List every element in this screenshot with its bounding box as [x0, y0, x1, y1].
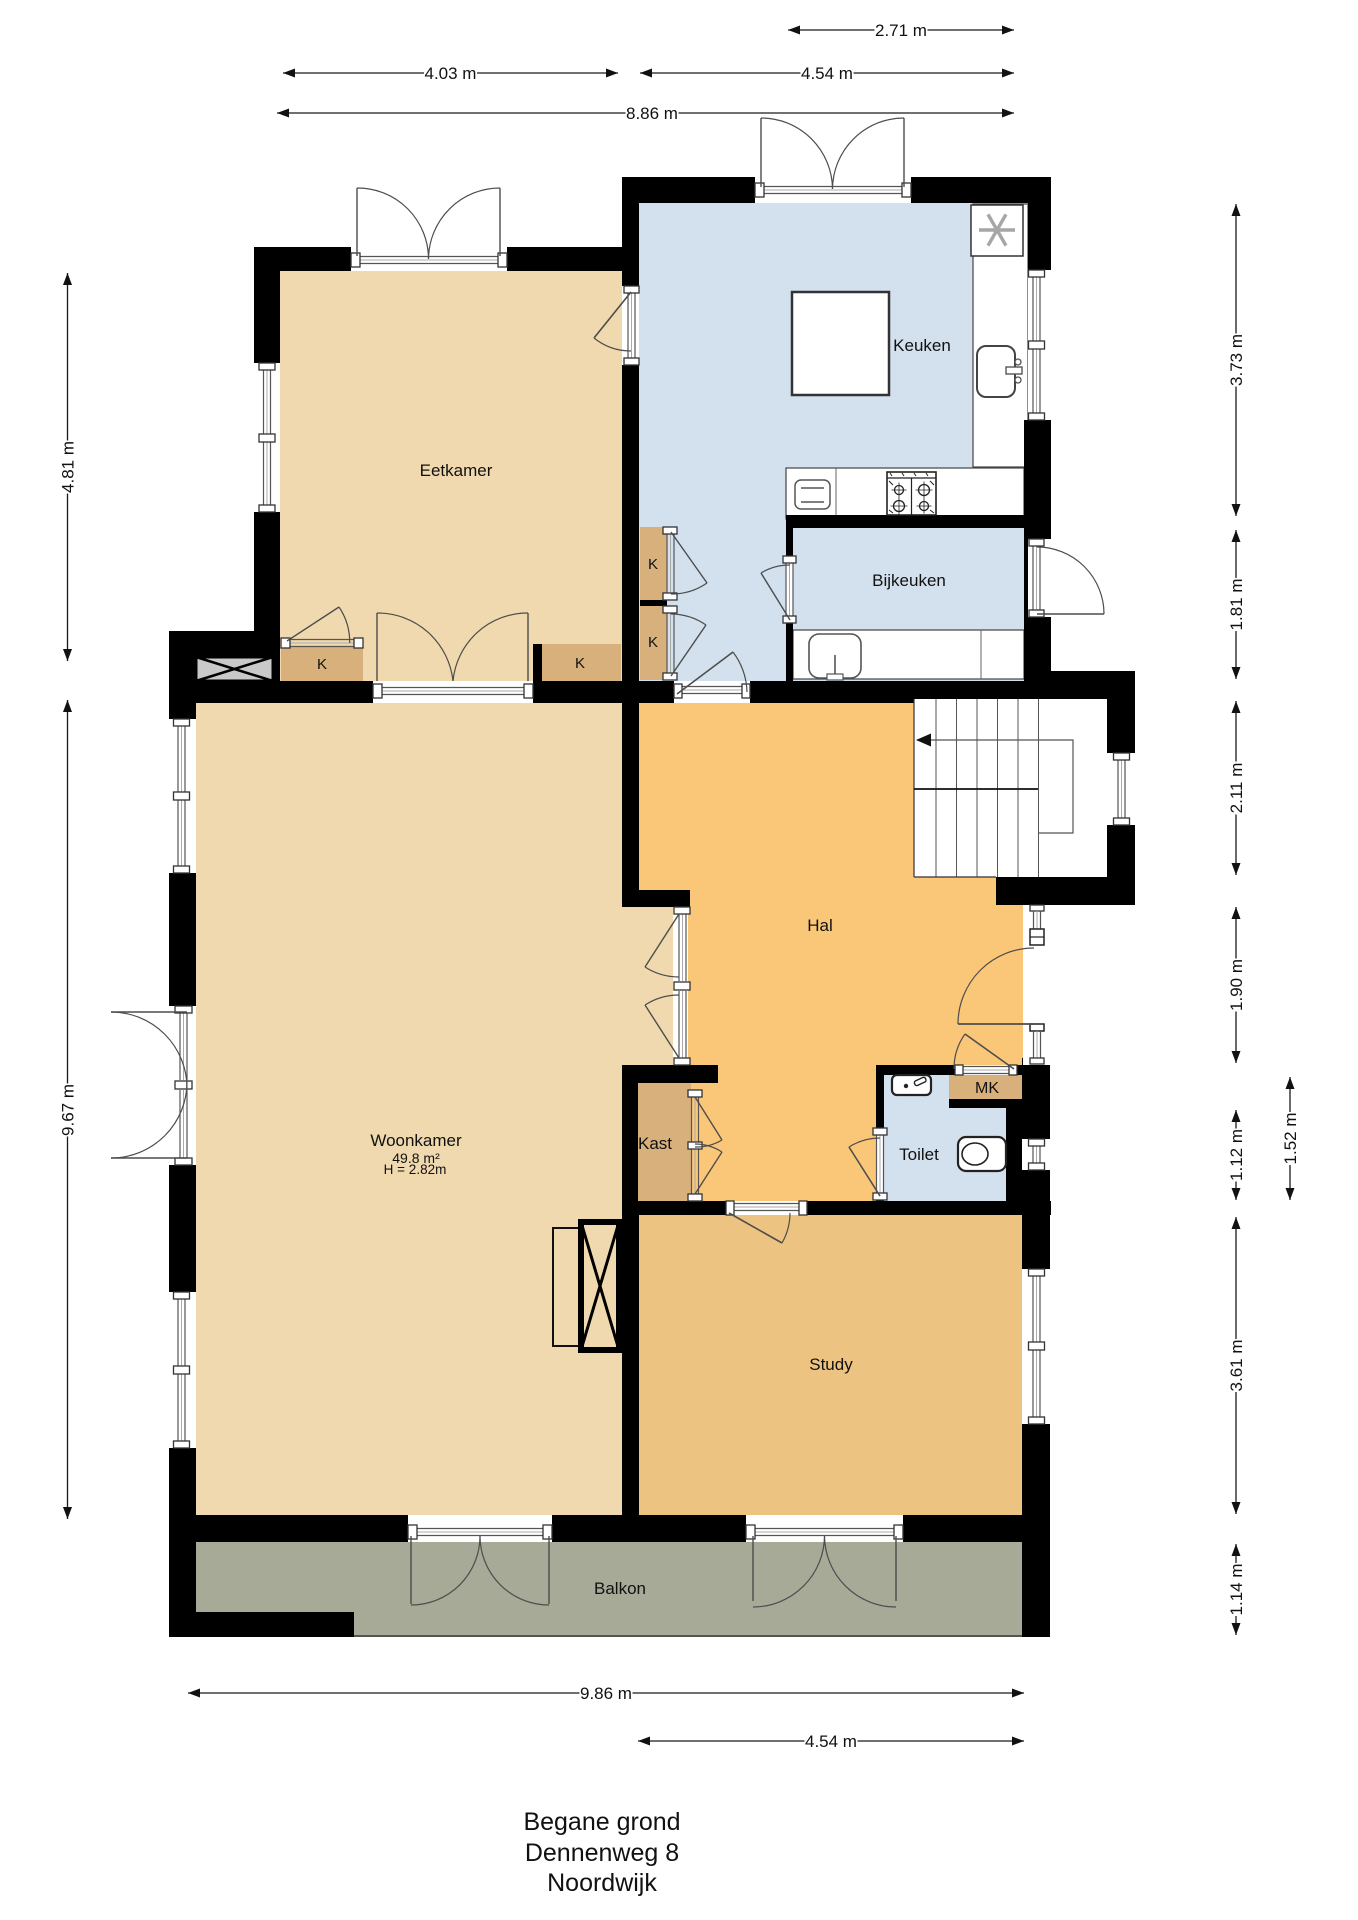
svg-text:Study: Study [809, 1355, 853, 1374]
svg-text:Woonkamer: Woonkamer [370, 1131, 462, 1150]
svg-text:1.81 m: 1.81 m [1227, 579, 1246, 631]
svg-text:K: K [648, 556, 658, 573]
svg-text:2.11 m: 2.11 m [1227, 763, 1246, 814]
svg-text:MK: MK [975, 1080, 999, 1097]
svg-text:Keuken: Keuken [893, 336, 951, 355]
svg-text:Balkon: Balkon [594, 1579, 646, 1598]
svg-text:K: K [575, 655, 585, 672]
svg-text:Hal: Hal [807, 916, 833, 935]
svg-text:Toilet: Toilet [899, 1145, 939, 1164]
svg-text:4.54 m: 4.54 m [801, 64, 853, 83]
svg-text:1.90 m: 1.90 m [1227, 959, 1246, 1011]
svg-text:3.61 m: 3.61 m [1227, 1340, 1246, 1392]
svg-text:4.03 m: 4.03 m [425, 64, 477, 83]
svg-text:9.86 m: 9.86 m [580, 1684, 632, 1703]
svg-text:Bijkeuken: Bijkeuken [872, 571, 946, 590]
svg-text:H = 2.82m: H = 2.82m [384, 1162, 447, 1177]
svg-text:Eetkamer: Eetkamer [420, 461, 493, 480]
svg-text:1.14 m: 1.14 m [1227, 1564, 1246, 1616]
svg-text:K: K [648, 634, 658, 651]
svg-text:9.67 m: 9.67 m [58, 1084, 77, 1136]
svg-text:8.86 m: 8.86 m [626, 104, 678, 123]
svg-text:Kast: Kast [638, 1134, 672, 1153]
svg-text:4.54 m: 4.54 m [805, 1732, 857, 1751]
svg-text:Dennenweg 8: Dennenweg 8 [525, 1839, 679, 1867]
svg-text:2.71 m: 2.71 m [875, 21, 927, 40]
svg-text:4.81 m: 4.81 m [58, 441, 77, 493]
svg-text:1.12 m: 1.12 m [1227, 1129, 1246, 1181]
svg-text:Noordwijk: Noordwijk [547, 1869, 657, 1897]
svg-text:Begane grond: Begane grond [523, 1808, 680, 1836]
svg-text:K: K [317, 656, 327, 673]
svg-text:1.52 m: 1.52 m [1281, 1113, 1300, 1165]
svg-text:3.73 m: 3.73 m [1227, 334, 1246, 386]
